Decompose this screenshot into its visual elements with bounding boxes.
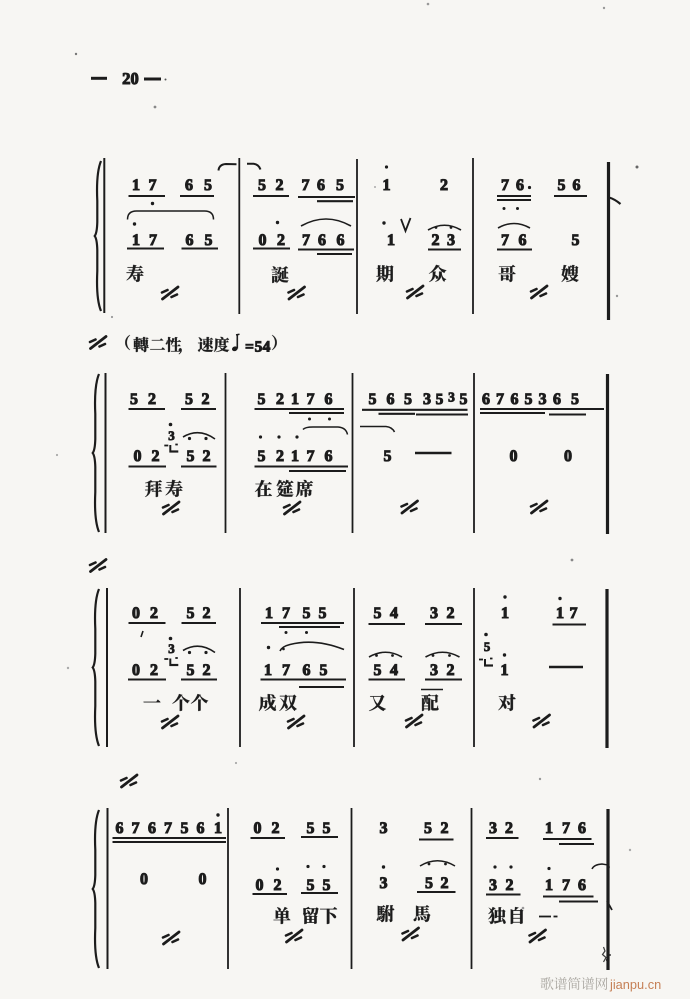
svg-text:jianpu.cn: jianpu.cn xyxy=(609,977,661,992)
